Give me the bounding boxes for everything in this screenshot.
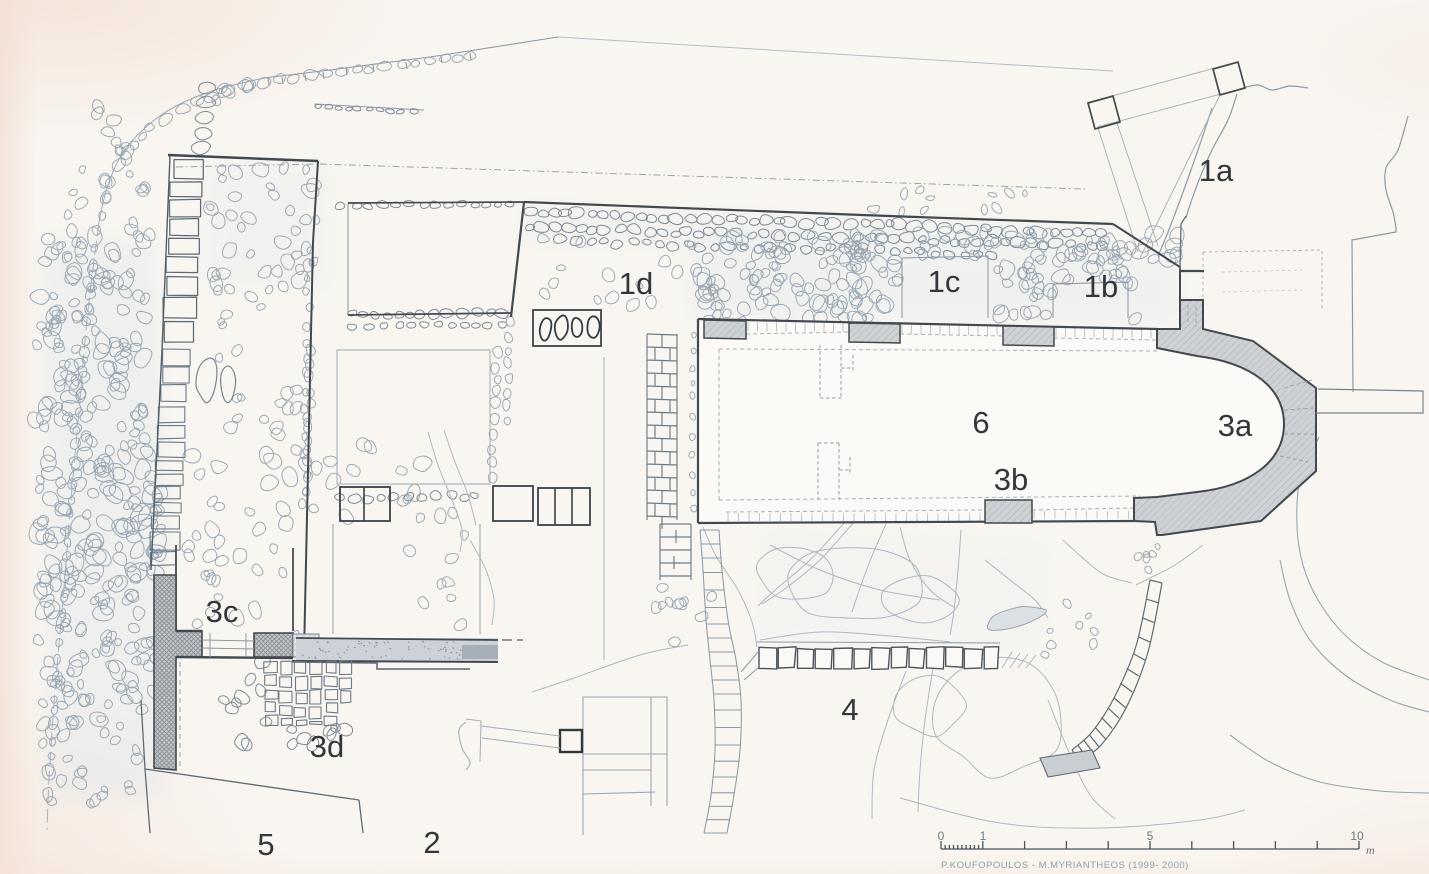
svg-text:5: 5 [257,827,274,862]
svg-text:1b: 1b [1084,269,1118,304]
svg-text:3c: 3c [206,594,239,629]
svg-text:1d: 1d [619,266,653,301]
svg-text:4: 4 [841,692,858,727]
svg-text:1c: 1c [928,264,961,299]
svg-text:3a: 3a [1218,408,1253,443]
svg-text:5: 5 [1147,829,1154,843]
svg-text:P.KOUFOPOULOS - M.MYRIANTHEOS: P.KOUFOPOULOS - M.MYRIANTHEOS (1999- 200… [941,860,1189,871]
svg-text:6: 6 [972,405,989,440]
svg-text:1: 1 [980,829,987,843]
svg-text:3d: 3d [310,729,344,764]
svg-text:1a: 1a [1199,153,1234,188]
svg-text:10: 10 [1350,829,1364,843]
svg-text:2: 2 [423,825,440,860]
svg-text:3b: 3b [994,462,1028,497]
svg-text:m: m [1366,843,1375,857]
svg-text:0: 0 [938,829,945,843]
